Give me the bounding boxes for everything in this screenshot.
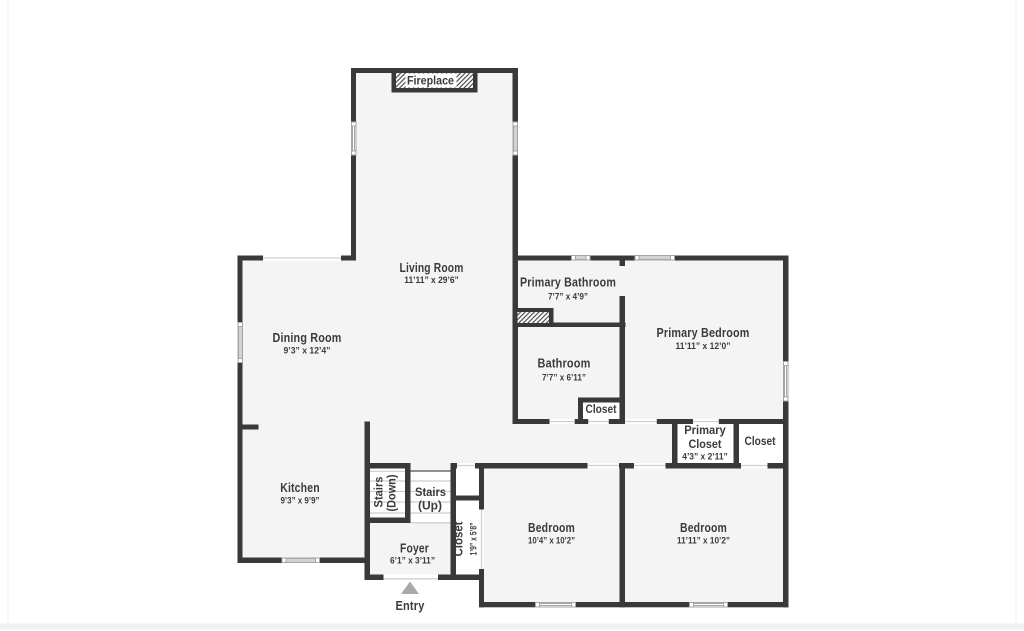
svg-text:Primary Bedroom: Primary Bedroom <box>657 326 750 340</box>
svg-text:9’3” x 12’4”: 9’3” x 12’4” <box>284 346 331 357</box>
svg-text:7’7” x 6’11”: 7’7” x 6’11” <box>542 373 586 384</box>
svg-text:Bedroom: Bedroom <box>528 521 575 535</box>
svg-text:6’1” x 3’11”: 6’1” x 3’11” <box>390 556 435 567</box>
svg-text:Bedroom: Bedroom <box>680 521 727 535</box>
svg-text:Kitchen: Kitchen <box>280 481 320 495</box>
svg-text:9’3” x 9’9”: 9’3” x 9’9” <box>281 496 320 507</box>
svg-text:Stairs: Stairs <box>415 487 446 499</box>
svg-text:Primary Bathroom: Primary Bathroom <box>520 276 616 290</box>
svg-text:(Up): (Up) <box>418 501 442 513</box>
svg-text:Closet: Closet <box>451 521 466 557</box>
svg-text:Closet: Closet <box>745 436 776 448</box>
svg-text:(Down): (Down) <box>387 474 399 511</box>
svg-text:Foyer: Foyer <box>400 542 429 556</box>
svg-text:Closet: Closet <box>586 404 617 416</box>
svg-text:4’3” x 2’11”: 4’3” x 2’11” <box>682 452 728 462</box>
svg-text:11’11” x 29’6”: 11’11” x 29’6” <box>404 275 459 286</box>
svg-text:1’9” x 5’8”: 1’9” x 5’8” <box>469 523 479 556</box>
svg-text:7’7” x 4’9”: 7’7” x 4’9” <box>548 292 588 303</box>
svg-text:Stairs: Stairs <box>374 477 386 508</box>
svg-text:Primary: Primary <box>684 425 726 437</box>
svg-text:11’11” x 12’0”: 11’11” x 12’0” <box>676 341 731 352</box>
svg-text:11’11” x 10’2”: 11’11” x 10’2” <box>677 536 730 547</box>
svg-text:Entry: Entry <box>396 599 425 613</box>
svg-text:Dining Room: Dining Room <box>273 331 342 345</box>
svg-text:Closet: Closet <box>689 439 722 451</box>
svg-text:10’4” x 10’2”: 10’4” x 10’2” <box>528 536 575 547</box>
svg-text:Bathroom: Bathroom <box>538 357 591 371</box>
svg-text:Living Room: Living Room <box>400 261 464 275</box>
svg-text:Fireplace: Fireplace <box>407 76 454 88</box>
